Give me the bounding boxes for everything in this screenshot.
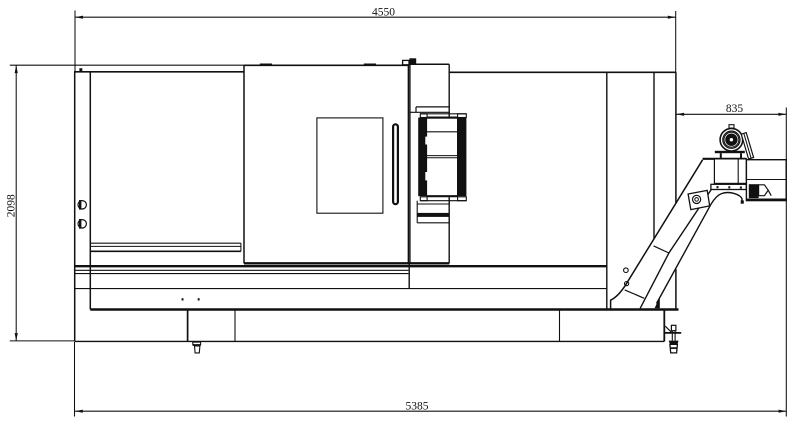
- svg-text:5385: 5385: [406, 401, 429, 413]
- svg-text:2098: 2098: [6, 194, 18, 217]
- svg-text:4550: 4550: [372, 7, 395, 19]
- svg-text:835: 835: [726, 103, 744, 115]
